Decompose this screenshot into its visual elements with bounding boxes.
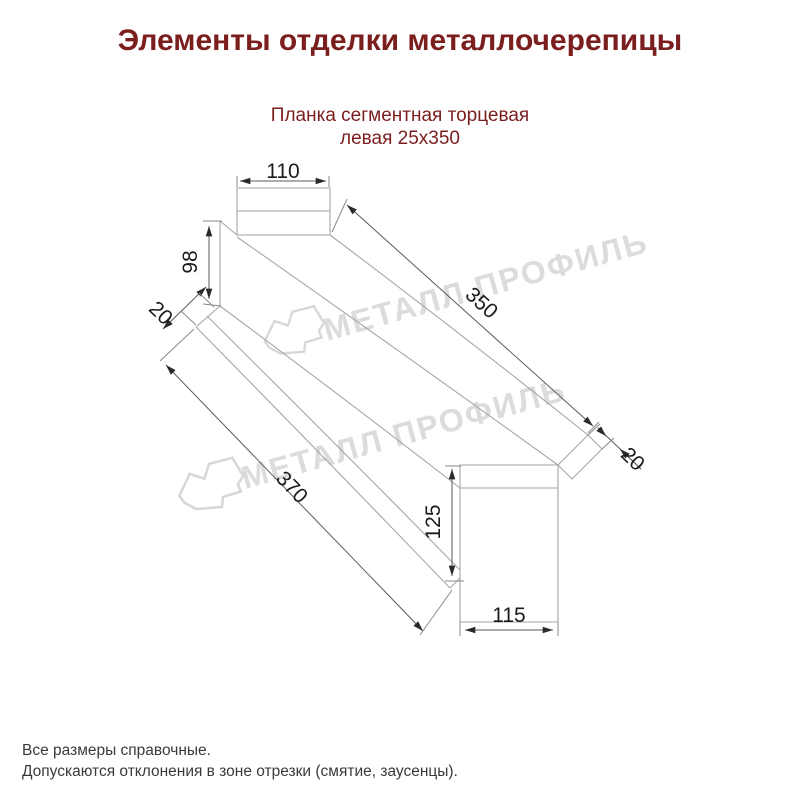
metall-profil-logo-icon: [261, 305, 327, 356]
watermark-layer: МЕТАЛЛ ПРОФИЛЬ МЕТАЛЛ ПРОФИЛЬ: [175, 223, 652, 511]
metall-profil-logo-icon: [175, 457, 246, 512]
dim-end-height-label: 125: [422, 504, 445, 539]
dim-left-hem-label: 20: [144, 297, 177, 330]
technical-drawing: МЕТАЛЛ ПРОФИЛЬ МЕТАЛЛ ПРОФИЛЬ: [0, 0, 800, 800]
dim-top-tab-width-label: 110: [266, 160, 299, 183]
footer-notes: Все размеры справочные. Допускаются откл…: [22, 740, 458, 782]
footer-note-2: Допускаются отклонения в зоне отрезки (с…: [22, 761, 458, 782]
dim-right-hem-label: 20: [616, 443, 649, 476]
dim-end-width-label: 115: [492, 604, 525, 627]
footer-note-1: Все размеры справочные.: [22, 740, 458, 761]
dim-left-height-label: 98: [179, 250, 202, 273]
catalog-page: Элементы отделки металлочерепицы Планка …: [0, 0, 800, 800]
